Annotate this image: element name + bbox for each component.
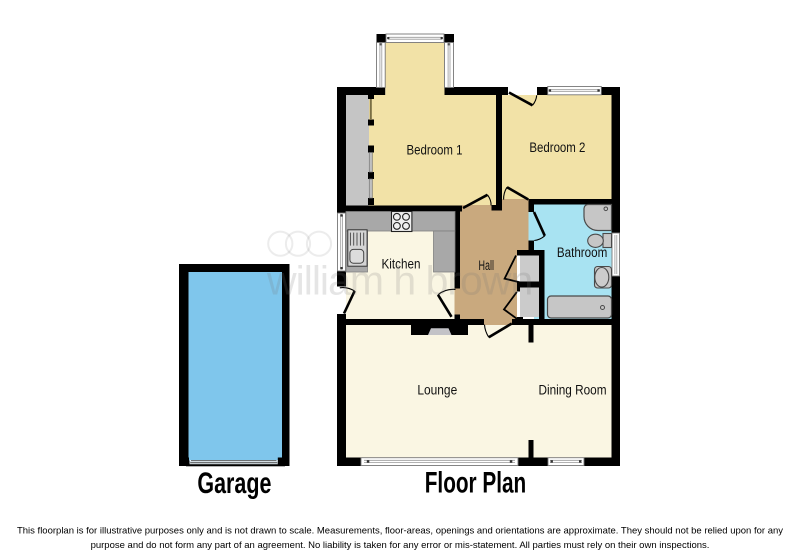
svg-text:Bedroom 1: Bedroom 1 [407, 143, 463, 158]
svg-text:Lounge: Lounge [417, 382, 457, 397]
svg-text:Garage: Garage [197, 467, 271, 500]
svg-text:Bedroom 2: Bedroom 2 [529, 140, 585, 155]
svg-text:william h brown: william h brown [266, 258, 532, 304]
svg-text:Bathroom: Bathroom [557, 245, 607, 260]
svg-text:This floorplan is for illustra: This floorplan is for illustrative purpo… [17, 526, 783, 537]
svg-text:purpose and do not form any pa: purpose and do not form any part of an a… [91, 540, 710, 551]
svg-text:Floor Plan: Floor Plan [425, 467, 527, 500]
svg-text:Dining Room: Dining Room [538, 383, 606, 398]
